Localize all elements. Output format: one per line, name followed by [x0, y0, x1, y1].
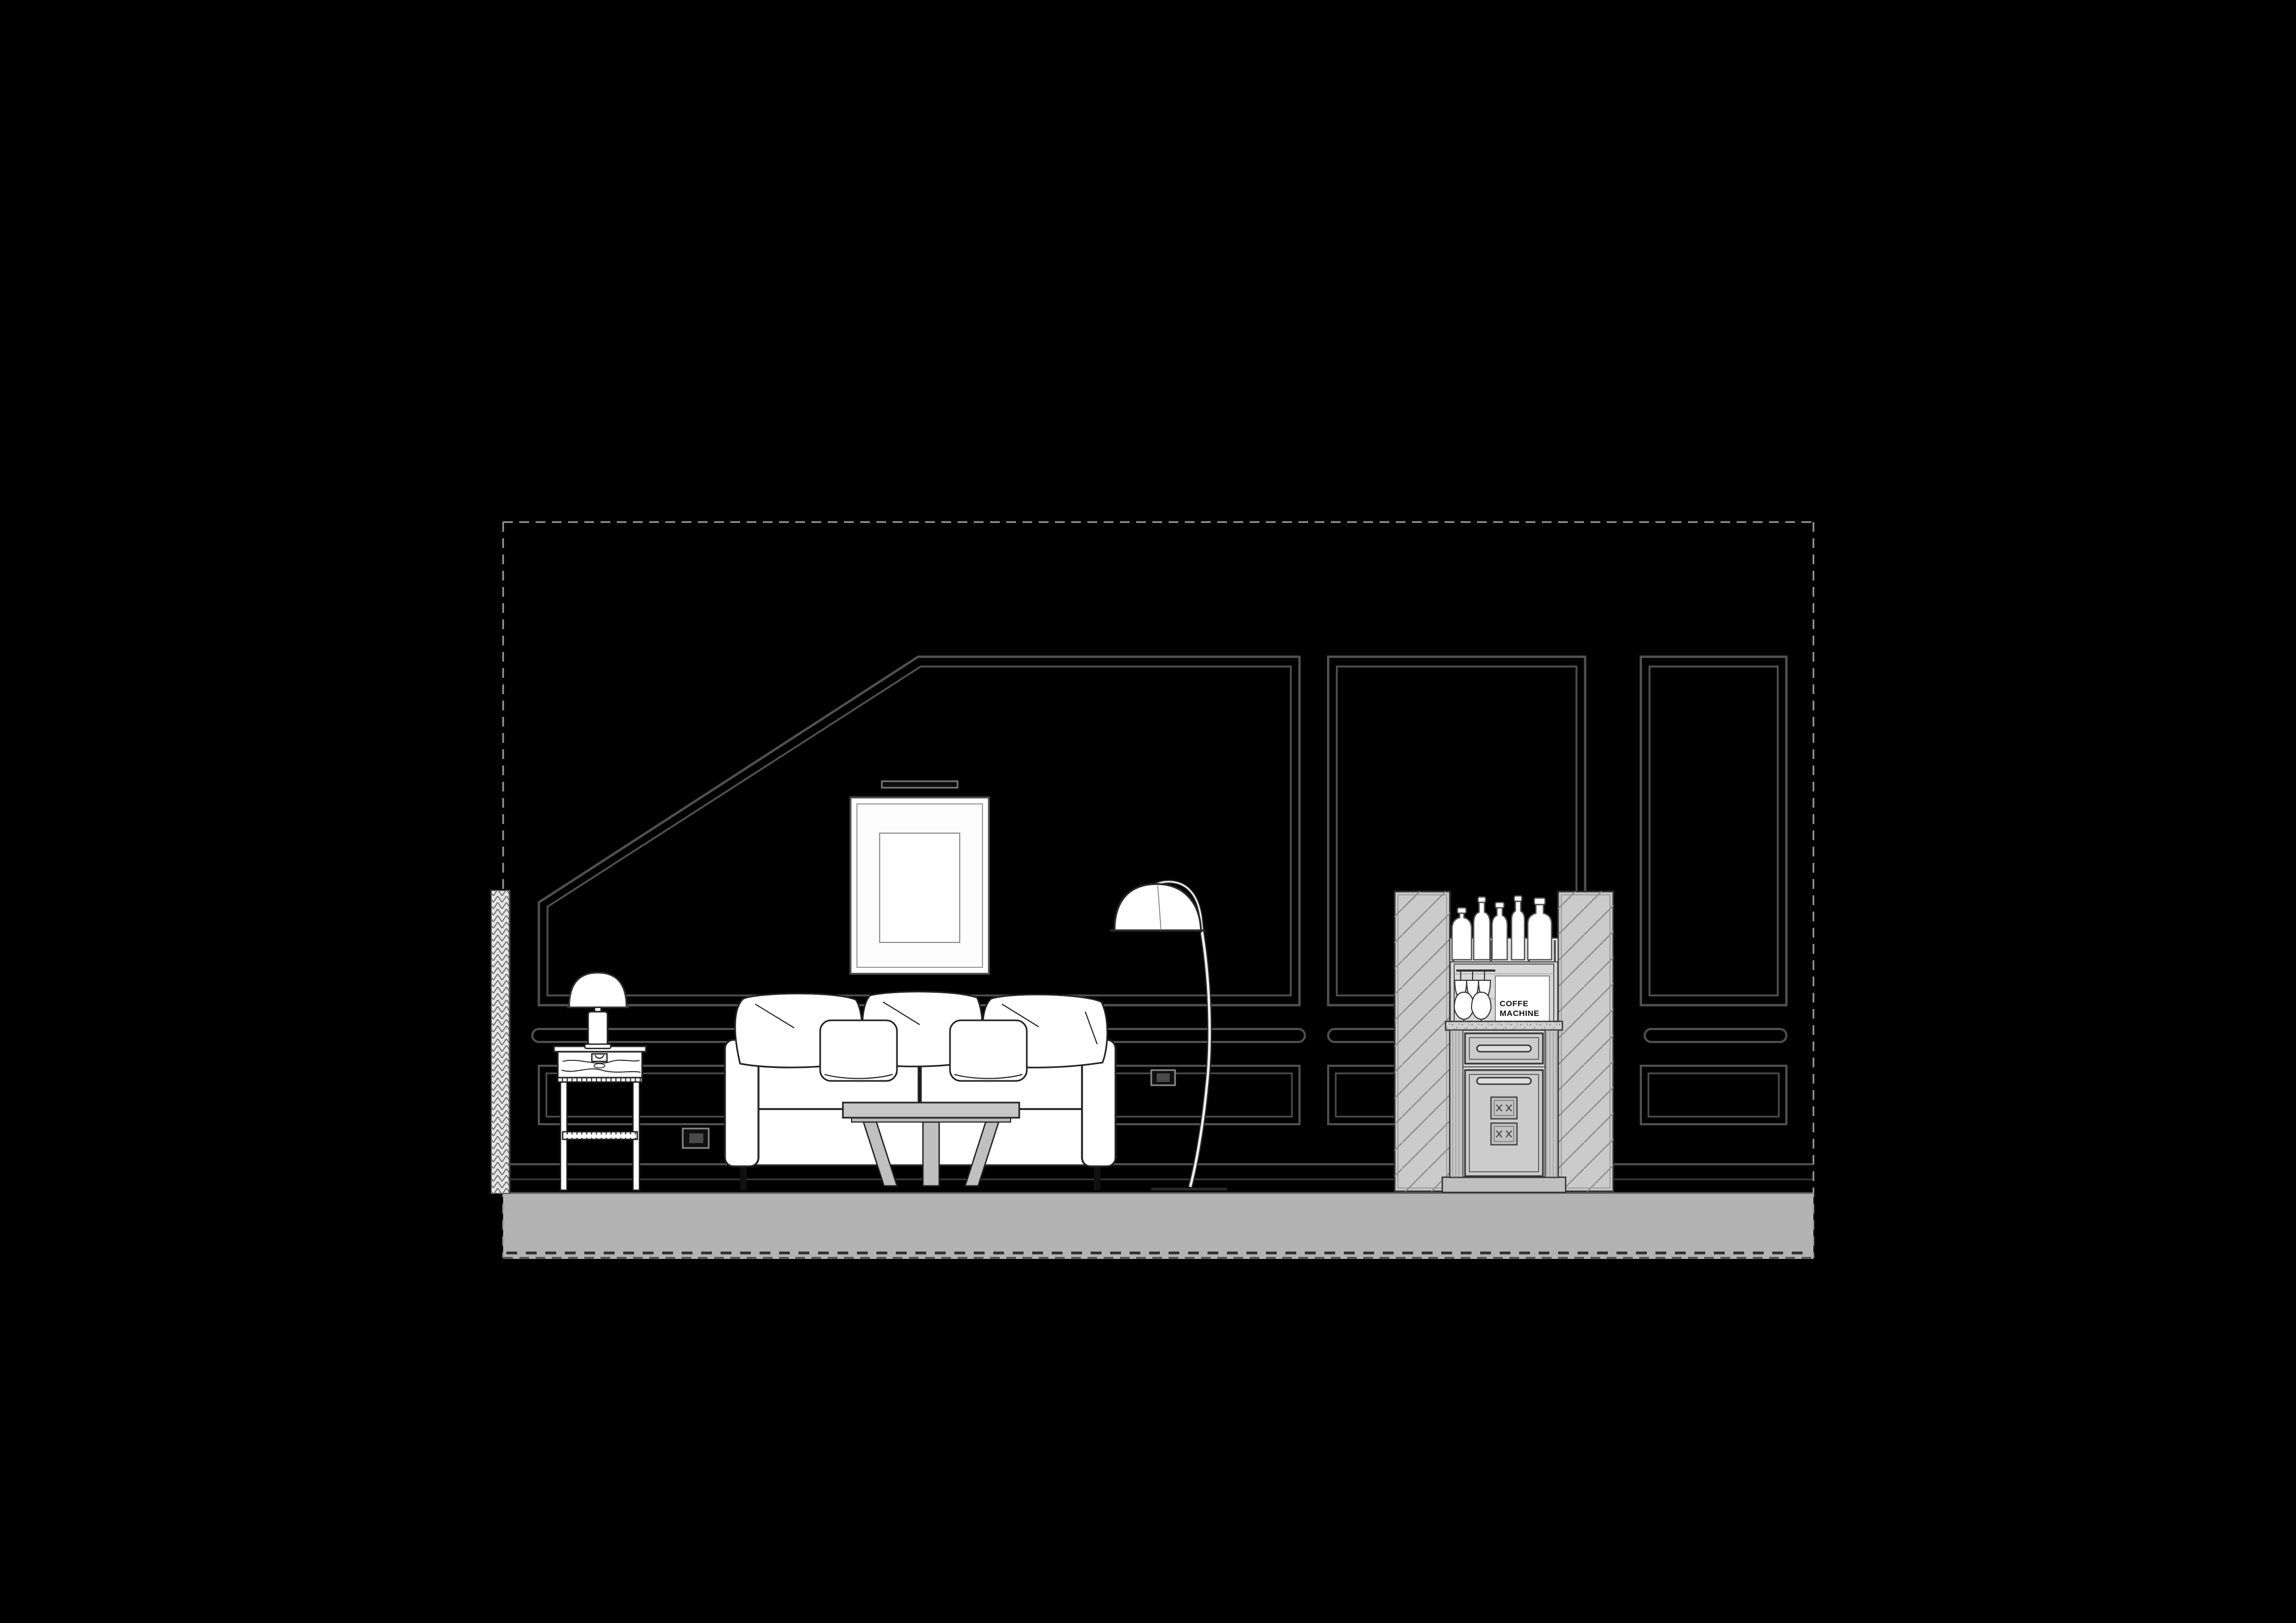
coffee-machine-box: COFFE MACHINE [1495, 976, 1549, 1021]
bar-interior: COFFE MACHINE [1454, 964, 1554, 1021]
door-pull [1477, 1078, 1531, 1084]
picture-light [882, 781, 958, 788]
sofa-leg [740, 1165, 747, 1190]
section-cut-hatch [491, 890, 510, 1193]
table-lamp-body [588, 1012, 608, 1045]
coffee-machine-label-line1: COFFE [1500, 999, 1528, 1008]
coffee-machine-label-line2: MACHINE [1500, 1009, 1540, 1018]
vent-grille [1491, 1123, 1517, 1145]
plinth [1442, 1177, 1566, 1192]
cabinet-door [1465, 1070, 1543, 1176]
background [0, 0, 2296, 1623]
mirror-side-panel-right [1558, 892, 1613, 1191]
coffee-table-top [843, 1103, 1019, 1118]
elevation-drawing: COFFE MACHINE [0, 0, 2296, 1623]
elevation-canvas: COFFE MACHINE [0, 0, 2296, 1623]
cabinet-drawer [1465, 1033, 1543, 1064]
back-pillows [735, 992, 1107, 1067]
drawer-pull [1477, 1045, 1531, 1052]
floor-slab [503, 1193, 1813, 1259]
table-lamp-base [585, 1044, 611, 1048]
picture-frame [850, 797, 989, 974]
power-outlet-right [1151, 1070, 1175, 1085]
marble-counter [1446, 1021, 1562, 1030]
table-drawer [558, 1052, 642, 1078]
mirror-side-panel-left [1395, 892, 1450, 1191]
sofa [725, 992, 1116, 1190]
minibar-cabinet: COFFE MACHINE [1395, 892, 1613, 1192]
coffee-table-post [923, 1122, 939, 1186]
vent-grille [1491, 1097, 1517, 1119]
power-outlet-left [683, 1129, 709, 1148]
sofa-leg [1094, 1165, 1100, 1190]
